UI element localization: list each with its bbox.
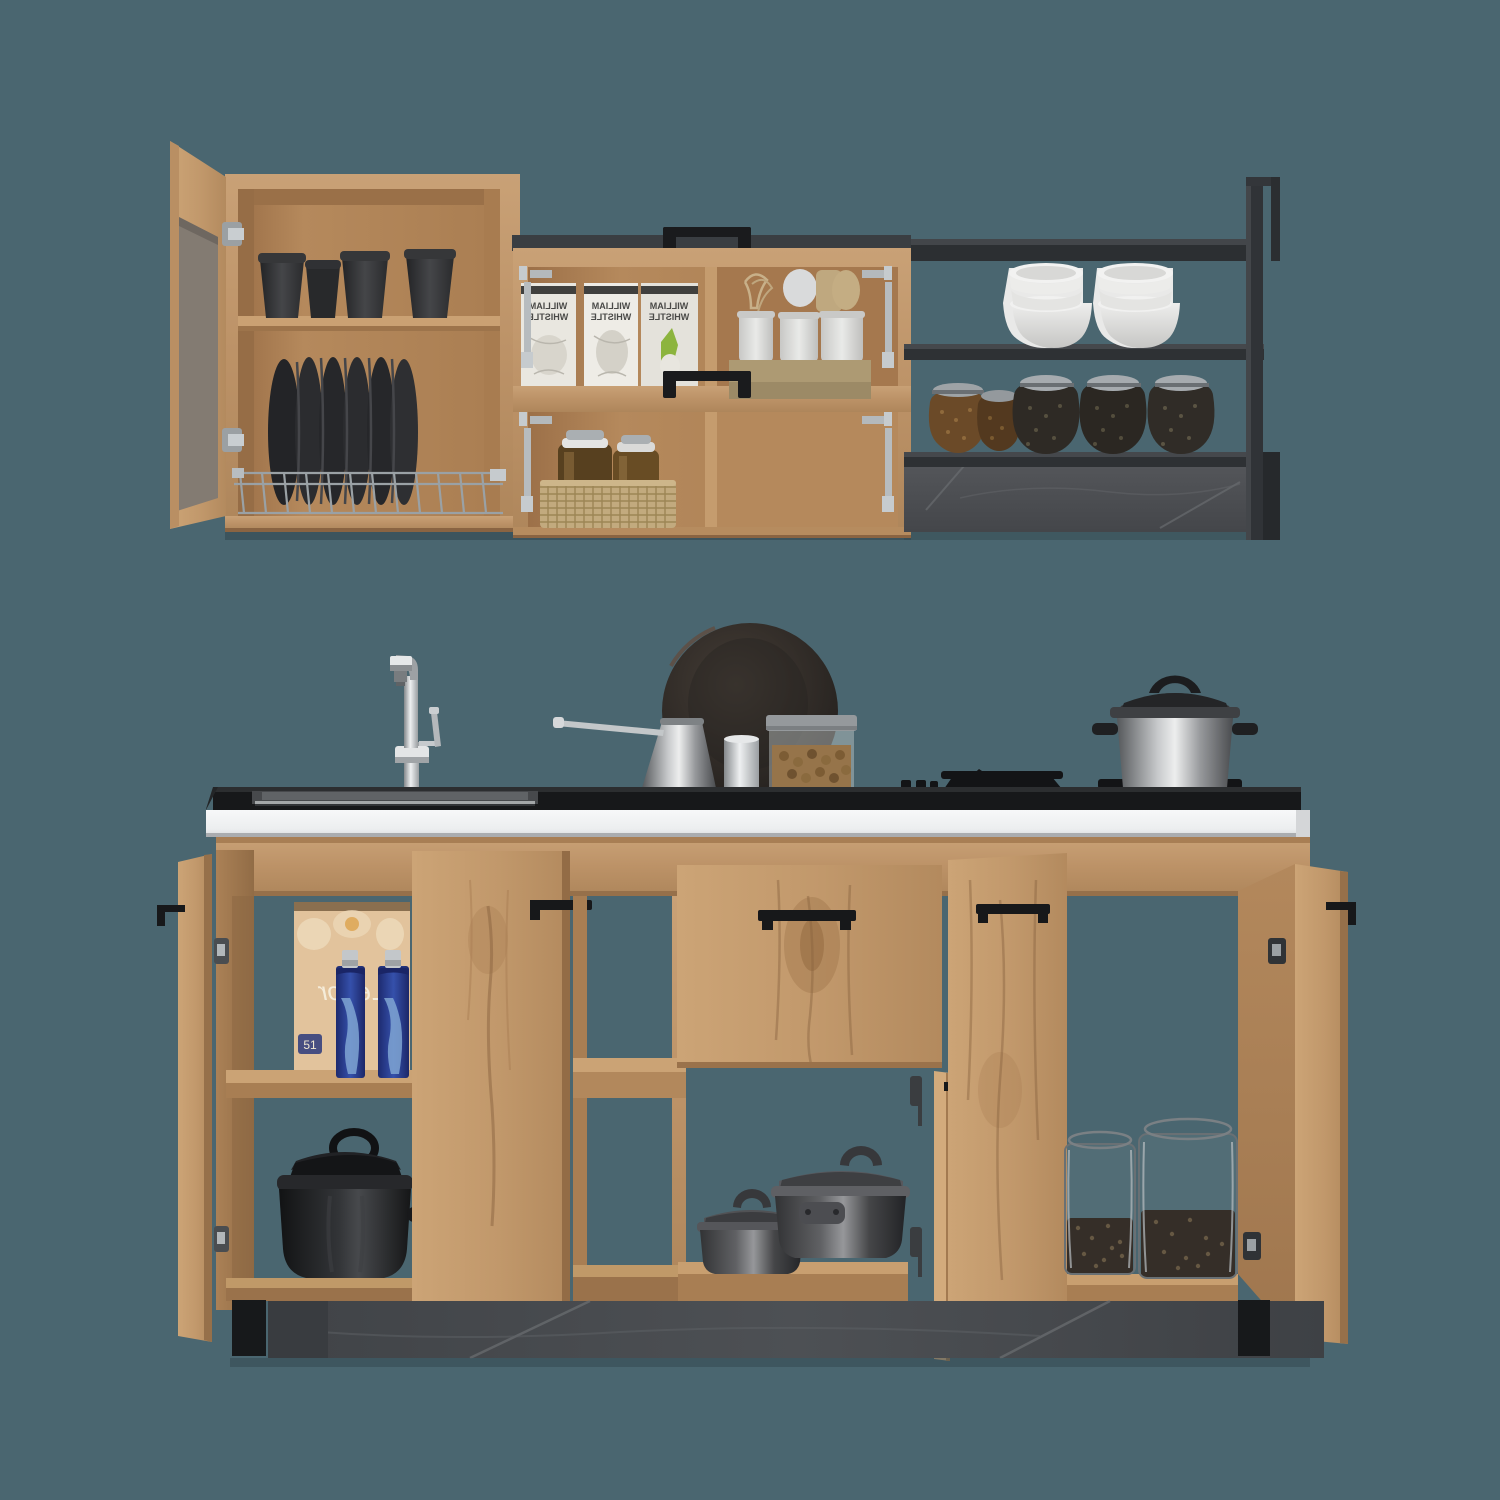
svg-text:51: 51: [303, 1038, 317, 1052]
svg-text:WHISTLE: WHISTLE: [591, 312, 632, 322]
svg-text:WILLIAM: WILLIAM: [650, 301, 689, 311]
svg-text:WHISTLE: WHISTLE: [649, 312, 690, 322]
svg-text:WILLIAM: WILLIAM: [529, 301, 568, 311]
svg-text:WHISTLE: WHISTLE: [528, 312, 569, 322]
svg-text:WILLIAM: WILLIAM: [592, 301, 631, 311]
